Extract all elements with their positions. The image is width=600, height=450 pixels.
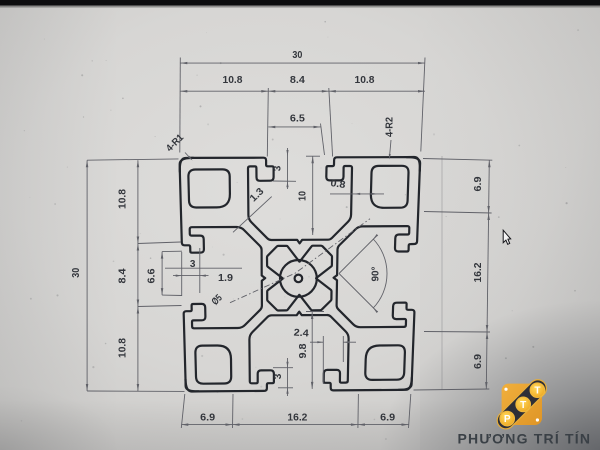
svg-text:6.9: 6.9 — [200, 412, 215, 423]
svg-text:6.9: 6.9 — [473, 176, 484, 191]
svg-text:10: 10 — [298, 191, 309, 201]
svg-text:16.2: 16.2 — [287, 412, 307, 423]
svg-text:PHƯƠNG TRÍ TÍN: PHƯƠNG TRÍ TÍN — [458, 431, 592, 447]
svg-text:3: 3 — [273, 373, 284, 379]
svg-text:8.4: 8.4 — [118, 268, 129, 283]
svg-text:6.5: 6.5 — [290, 113, 305, 124]
svg-text:P: P — [504, 414, 511, 425]
svg-text:1.9: 1.9 — [218, 273, 233, 284]
svg-text:T: T — [520, 400, 526, 411]
svg-text:T: T — [534, 386, 540, 397]
svg-text:10.8: 10.8 — [355, 75, 375, 86]
svg-text:16.2: 16.2 — [473, 262, 484, 282]
svg-text:4-R2: 4-R2 — [385, 117, 396, 137]
svg-text:10.8: 10.8 — [223, 75, 243, 86]
svg-text:6.6: 6.6 — [147, 268, 158, 283]
svg-text:8.4: 8.4 — [290, 75, 305, 86]
svg-text:10.8: 10.8 — [118, 338, 129, 358]
svg-text:30: 30 — [292, 50, 302, 61]
svg-text:0.8: 0.8 — [330, 178, 347, 191]
svg-text:9.8: 9.8 — [298, 343, 309, 358]
svg-text:6.9: 6.9 — [473, 354, 484, 369]
svg-text:30: 30 — [71, 267, 82, 277]
svg-text:6.9: 6.9 — [380, 412, 395, 423]
svg-text:3: 3 — [273, 165, 284, 171]
svg-text:2.4: 2.4 — [293, 327, 309, 339]
svg-text:10.8: 10.8 — [118, 189, 129, 209]
svg-text:90°: 90° — [371, 267, 382, 282]
